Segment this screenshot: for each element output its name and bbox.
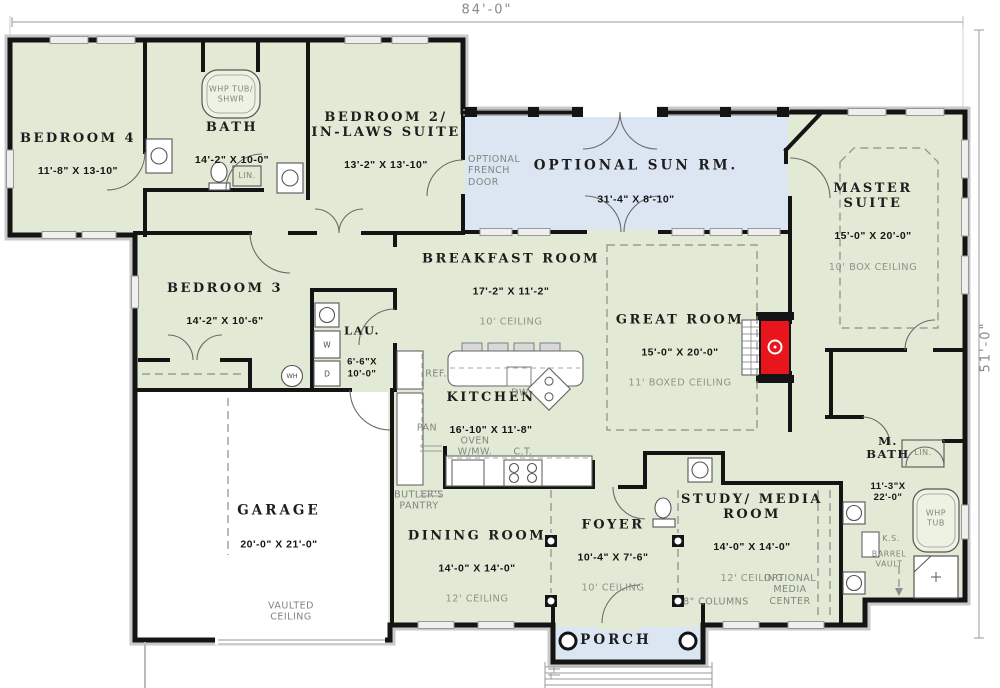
knee-space [862,532,879,557]
fireplace [742,312,794,383]
porch-column [560,633,576,649]
oven [452,460,484,486]
whirlpool-tub-shower [202,70,260,118]
pantry-cabinet [397,393,423,485]
floor-plan-graphics [0,0,1000,688]
refrigerator [397,351,423,389]
overall-depth-dimension: 51'-0" [979,321,994,372]
washer [314,331,340,358]
range [504,460,542,486]
sink [282,170,298,186]
sink [151,148,167,164]
toilet [211,162,227,182]
dishwasher [507,367,531,386]
whirlpool-tub [913,489,959,552]
porch-column [680,633,696,649]
garage-area [137,392,388,638]
water-heater [282,366,303,387]
floor-plan-page: 84'-0" 51'-0" BEDROOM 4 11'-8" X 13-10" … [0,0,1000,688]
overall-width-dimension: 84'-0" [461,3,512,18]
dryer [314,361,340,386]
sunroom-area [465,114,788,230]
